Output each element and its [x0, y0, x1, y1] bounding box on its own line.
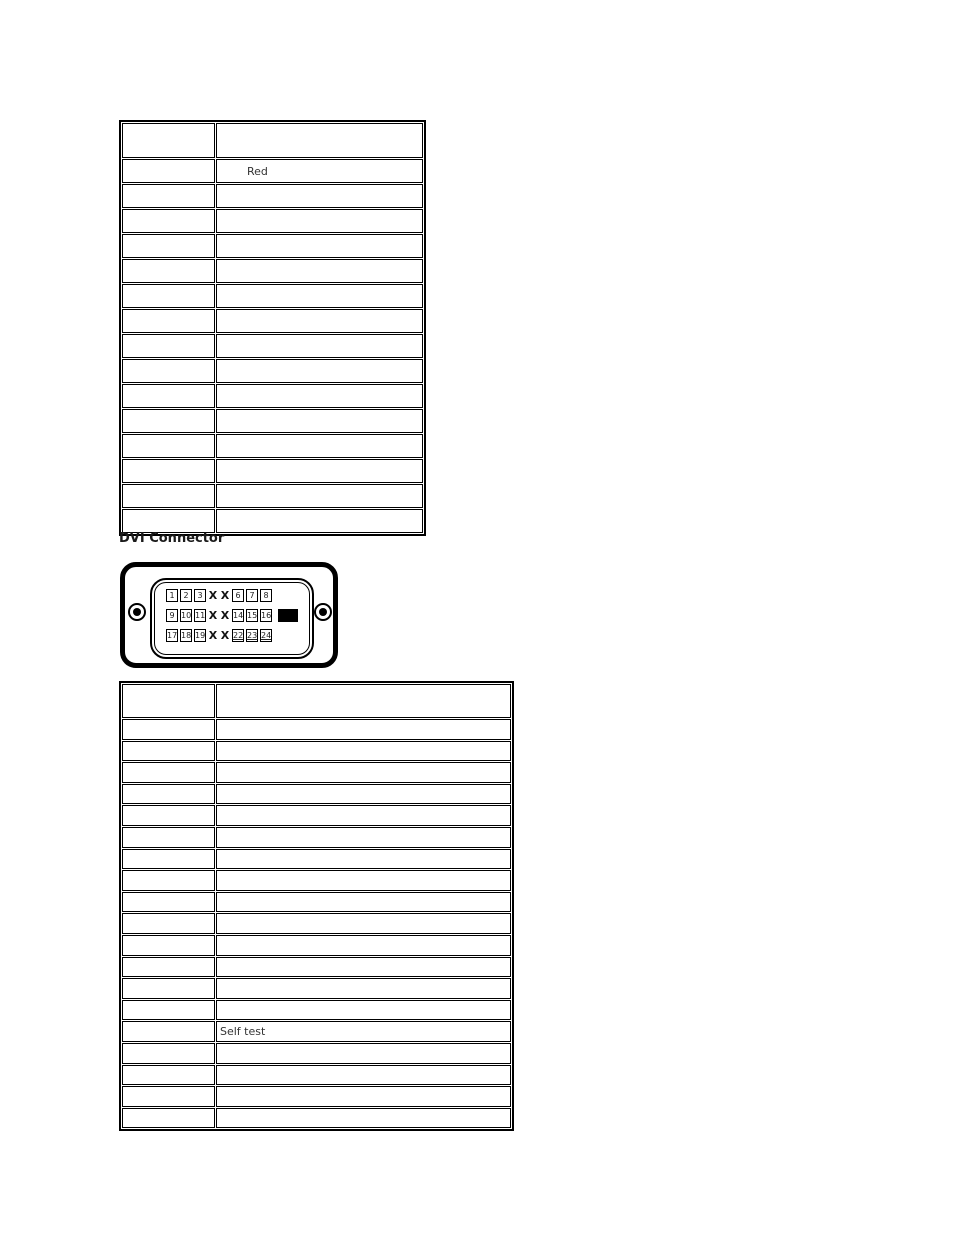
table-row	[122, 827, 511, 848]
pin-box: 16	[260, 609, 272, 622]
table-cell	[216, 1065, 511, 1086]
table-cell	[122, 719, 215, 740]
table-cell	[122, 484, 215, 508]
pin-box: 11	[194, 609, 206, 622]
dvi-pin-row-2: 9 10 11 X X 14 15 16	[166, 609, 298, 622]
pin-box: 24	[260, 629, 272, 642]
table-cell	[122, 1065, 215, 1086]
table-row	[122, 384, 423, 408]
table-cell	[122, 1021, 215, 1042]
table-row	[122, 719, 511, 740]
table-cell	[216, 259, 423, 283]
table-header-row	[122, 123, 423, 158]
pin-box: 10	[180, 609, 192, 622]
pin-box: 1	[166, 589, 178, 602]
table-header-cell	[216, 684, 511, 718]
table-row	[122, 259, 423, 283]
pin-box: 14	[232, 609, 244, 622]
table-cell	[216, 935, 511, 956]
pin-box: 9	[166, 609, 178, 622]
table-row	[122, 892, 511, 913]
no-pin-x-mark: X	[220, 609, 230, 622]
table-cell	[216, 762, 511, 783]
table-cell	[216, 957, 511, 978]
table-cell: Red	[216, 159, 423, 183]
table-row	[122, 234, 423, 258]
table-cell	[122, 459, 215, 483]
pin-box: 17	[166, 629, 178, 642]
table-row	[122, 1043, 511, 1064]
table-cell	[216, 459, 423, 483]
table-row	[122, 1108, 511, 1129]
dvi-connector-heading: DVI Connector	[119, 531, 224, 546]
table-cell	[216, 284, 423, 308]
table-cell	[216, 719, 511, 740]
no-pin-x-mark: X	[208, 589, 218, 602]
table-cell	[216, 359, 423, 383]
table-cell	[216, 309, 423, 333]
table-row	[122, 284, 423, 308]
table-cell	[216, 234, 423, 258]
table-cell	[216, 1000, 511, 1021]
table-cell	[122, 509, 215, 533]
upper-pin-table: Red	[119, 120, 426, 536]
table-row	[122, 741, 511, 762]
table-row	[122, 209, 423, 233]
table-cell	[122, 284, 215, 308]
dvi-connector-diagram: 1 2 3 X X 6 7 8 9 10 11 X X 14 15 16 17 …	[120, 562, 338, 668]
table-cell	[216, 209, 423, 233]
table-cell	[122, 849, 215, 870]
table-cell	[216, 805, 511, 826]
no-pin-x-mark: X	[208, 609, 218, 622]
dvi-pin-row-3: 17 18 19 X X 22 23 24	[166, 629, 272, 642]
screw-hole-left-icon	[128, 603, 146, 621]
table-cell	[122, 184, 215, 208]
table-cell	[122, 978, 215, 999]
table-cell	[122, 159, 215, 183]
table-cell	[122, 741, 215, 762]
pin-box: 8	[260, 589, 272, 602]
table-cell	[216, 892, 511, 913]
table-cell	[122, 309, 215, 333]
table-cell	[216, 1108, 511, 1129]
table-row	[122, 1086, 511, 1107]
table-cell	[216, 849, 511, 870]
table-header	[122, 684, 511, 718]
table-cell	[216, 184, 423, 208]
table-cell	[122, 1108, 215, 1129]
table-row	[122, 309, 423, 333]
table-cell	[122, 935, 215, 956]
table-cell	[216, 334, 423, 358]
table-cell	[122, 784, 215, 805]
table-row	[122, 184, 423, 208]
table-row	[122, 935, 511, 956]
blade-slot	[278, 609, 298, 622]
no-pin-x-mark: X	[208, 629, 218, 642]
table-cell	[122, 234, 215, 258]
table-row	[122, 334, 423, 358]
pin-box: 2	[180, 589, 192, 602]
dvi-pin-table: Self test	[119, 681, 514, 1131]
table-cell	[216, 1086, 511, 1107]
table-cell: Self test	[216, 1021, 511, 1042]
table-cell	[122, 1000, 215, 1021]
table-row	[122, 484, 423, 508]
table-cell	[216, 741, 511, 762]
table-cell	[216, 509, 423, 533]
pin-box: 23	[246, 629, 258, 642]
table-row	[122, 870, 511, 891]
pin-box: 22	[232, 629, 244, 642]
table-cell	[122, 409, 215, 433]
table-body: Self test	[122, 719, 511, 1128]
table-header-cell	[122, 684, 215, 718]
table-cell	[216, 913, 511, 934]
table-row	[122, 459, 423, 483]
table-cell	[216, 784, 511, 805]
table-header-cell	[122, 123, 215, 158]
table-row	[122, 509, 423, 533]
table-cell	[122, 1043, 215, 1064]
table-cell	[216, 409, 423, 433]
table-cell	[216, 484, 423, 508]
pin-box: 15	[246, 609, 258, 622]
table-cell	[122, 827, 215, 848]
screw-hole-right-icon	[314, 603, 332, 621]
table-header	[122, 123, 423, 158]
table-cell	[216, 434, 423, 458]
table-cell	[122, 870, 215, 891]
table-row	[122, 1000, 511, 1021]
table-row	[122, 409, 423, 433]
table-row	[122, 434, 423, 458]
table-header-cell	[216, 123, 423, 158]
table-cell	[122, 434, 215, 458]
table-cell	[216, 870, 511, 891]
pin-box: 19	[194, 629, 206, 642]
table-cell	[122, 913, 215, 934]
table-cell	[122, 334, 215, 358]
table-cell	[122, 762, 215, 783]
table-cell	[122, 209, 215, 233]
table-cell	[122, 259, 215, 283]
table-row	[122, 978, 511, 999]
table-row	[122, 762, 511, 783]
table-cell	[216, 1043, 511, 1064]
table-cell	[216, 827, 511, 848]
table-row	[122, 1065, 511, 1086]
table-cell	[122, 359, 215, 383]
table-cell	[122, 384, 215, 408]
dvi-pin-row-1: 1 2 3 X X 6 7 8	[166, 589, 272, 602]
pin-box: 7	[246, 589, 258, 602]
pin-box: 3	[194, 589, 206, 602]
table-body: Red	[122, 159, 423, 533]
table-cell	[122, 805, 215, 826]
table-cell	[122, 1086, 215, 1107]
table-cell	[122, 892, 215, 913]
no-pin-x-mark: X	[220, 589, 230, 602]
table-row: Red	[122, 159, 423, 183]
table-header-row	[122, 684, 511, 718]
table-cell	[216, 978, 511, 999]
pin-box: 6	[232, 589, 244, 602]
table-row	[122, 957, 511, 978]
table-cell	[122, 957, 215, 978]
table-cell	[216, 384, 423, 408]
table-row	[122, 913, 511, 934]
table-row	[122, 359, 423, 383]
table-row	[122, 805, 511, 826]
table-row: Self test	[122, 1021, 511, 1042]
no-pin-x-mark: X	[220, 629, 230, 642]
table-row	[122, 849, 511, 870]
pin-box: 18	[180, 629, 192, 642]
document-page: Red DVI Connector 1 2 3 X X 6 7 8 9 10 1…	[0, 0, 954, 1235]
table-row	[122, 784, 511, 805]
